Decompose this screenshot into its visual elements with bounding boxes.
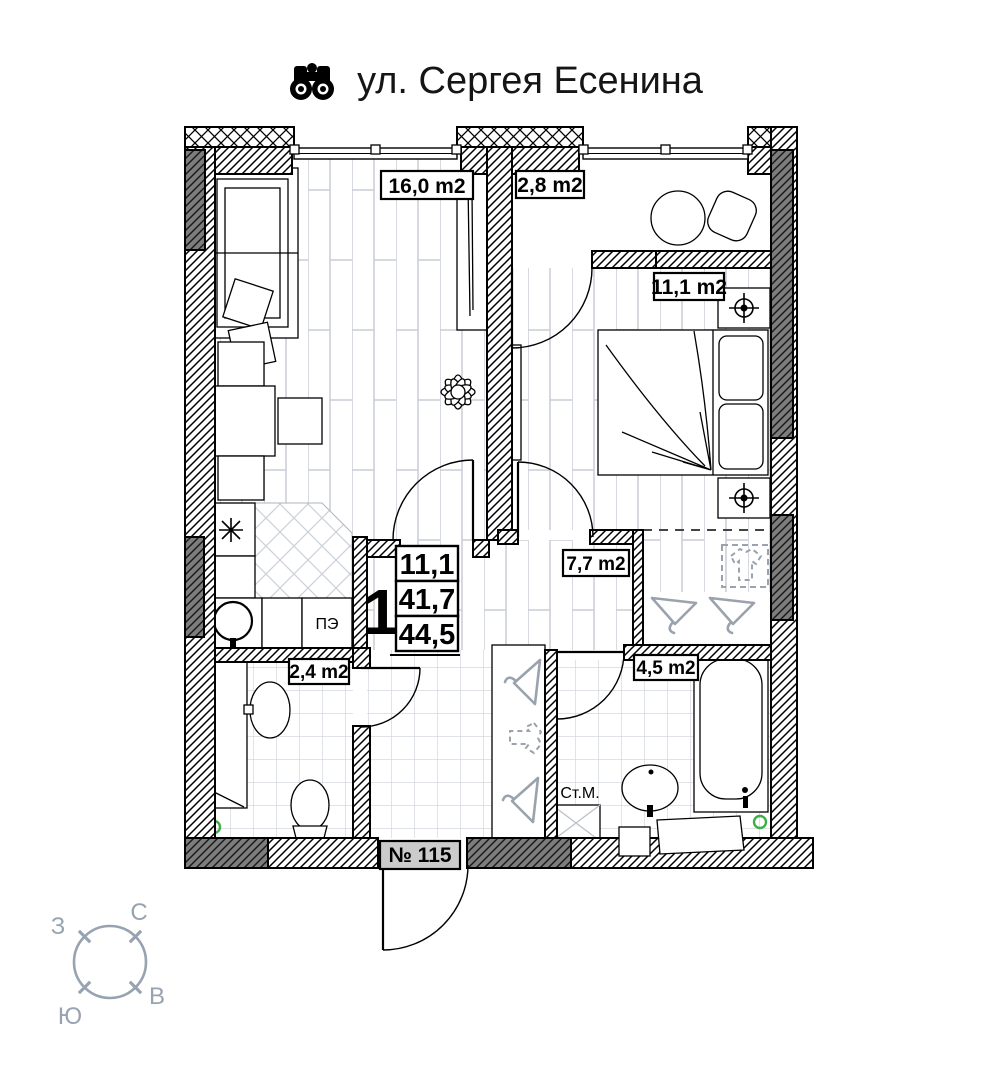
wall-top-1 bbox=[185, 127, 294, 148]
apartment-number: № 115 bbox=[388, 844, 451, 867]
wall-hall-bedroom bbox=[498, 530, 518, 544]
entry-mat bbox=[657, 816, 744, 854]
tap-icon bbox=[244, 705, 253, 714]
pillow bbox=[719, 404, 763, 469]
wall-hall-bedroom bbox=[590, 530, 635, 544]
compass-rose: С З В Ю bbox=[51, 899, 165, 1030]
tap-icon bbox=[647, 805, 653, 817]
stove-label: ПЭ bbox=[316, 616, 339, 633]
shaft-box bbox=[619, 827, 650, 856]
chair bbox=[218, 342, 264, 386]
wall-partition-v1 bbox=[487, 147, 512, 540]
hall-wardrobe bbox=[492, 645, 545, 838]
compass-north: С bbox=[130, 899, 147, 926]
wall-left-dark bbox=[185, 150, 205, 250]
floor-plan-canvas: ул. Сергея Есенина bbox=[0, 0, 1001, 1068]
window-living bbox=[290, 145, 461, 159]
room-label-living: 16,0 m2 bbox=[388, 175, 465, 198]
compass-west: З bbox=[51, 913, 66, 940]
rooms-count: 1 bbox=[363, 576, 399, 648]
balcony-table bbox=[651, 191, 705, 245]
hanger-icon bbox=[710, 598, 754, 633]
pillow bbox=[719, 336, 763, 400]
floor-corridor bbox=[367, 650, 492, 838]
page-title: ул. Сергея Есенина bbox=[357, 60, 704, 102]
kitchen-sink bbox=[214, 602, 252, 640]
wall-balcony bbox=[592, 251, 656, 268]
washer-label: Ст.М. bbox=[560, 785, 599, 802]
plant-icon bbox=[441, 375, 475, 409]
wall-hall-living bbox=[473, 540, 489, 557]
hanger-icon bbox=[652, 598, 696, 633]
wall-top-2 bbox=[457, 127, 583, 148]
door-entrance bbox=[383, 865, 468, 950]
area-living: 11,1 bbox=[400, 549, 455, 581]
wall-right-dark bbox=[771, 515, 793, 620]
room-label-bedroom: 11,1 m2 bbox=[651, 276, 727, 299]
wall-bath-left bbox=[545, 650, 557, 838]
tap-icon bbox=[743, 796, 748, 808]
floor-plan-page: ул. Сергея Есенина bbox=[0, 0, 1001, 1068]
compass-east: В bbox=[149, 983, 165, 1010]
chair bbox=[218, 456, 264, 500]
room-label-hall: 7,7 m2 bbox=[566, 554, 625, 575]
area-main: 41,7 bbox=[399, 584, 455, 616]
room-label-bath: 4,5 m2 bbox=[636, 658, 695, 679]
toilet bbox=[291, 780, 329, 830]
wall-dressing bbox=[633, 530, 643, 650]
wall-bottom-dark bbox=[467, 838, 571, 868]
wall-right-dark bbox=[771, 150, 793, 438]
wall-pier bbox=[207, 147, 292, 174]
area-total: 44,5 bbox=[399, 619, 455, 651]
header: ул. Сергея Есенина bbox=[290, 60, 704, 102]
binoculars-icon bbox=[290, 63, 334, 100]
balcony-chair bbox=[704, 187, 760, 244]
wall-left-dark bbox=[185, 537, 204, 637]
floor-dressing bbox=[643, 530, 771, 592]
chair bbox=[278, 398, 322, 444]
wall-wc-right bbox=[353, 726, 370, 838]
window-balcony bbox=[579, 145, 752, 159]
compass-ticks bbox=[79, 931, 141, 993]
compass-south: Ю bbox=[58, 1003, 82, 1030]
wc-sink bbox=[250, 682, 290, 738]
room-label-wc: 2,4 m2 bbox=[289, 662, 348, 683]
room-label-balcony: 2,8 m2 bbox=[517, 174, 582, 197]
wall-bottom-dark bbox=[185, 838, 268, 868]
wall-balcony bbox=[656, 251, 771, 268]
wall-wc-right bbox=[353, 648, 370, 668]
snowflake-icon bbox=[219, 518, 243, 542]
bed bbox=[598, 330, 768, 475]
